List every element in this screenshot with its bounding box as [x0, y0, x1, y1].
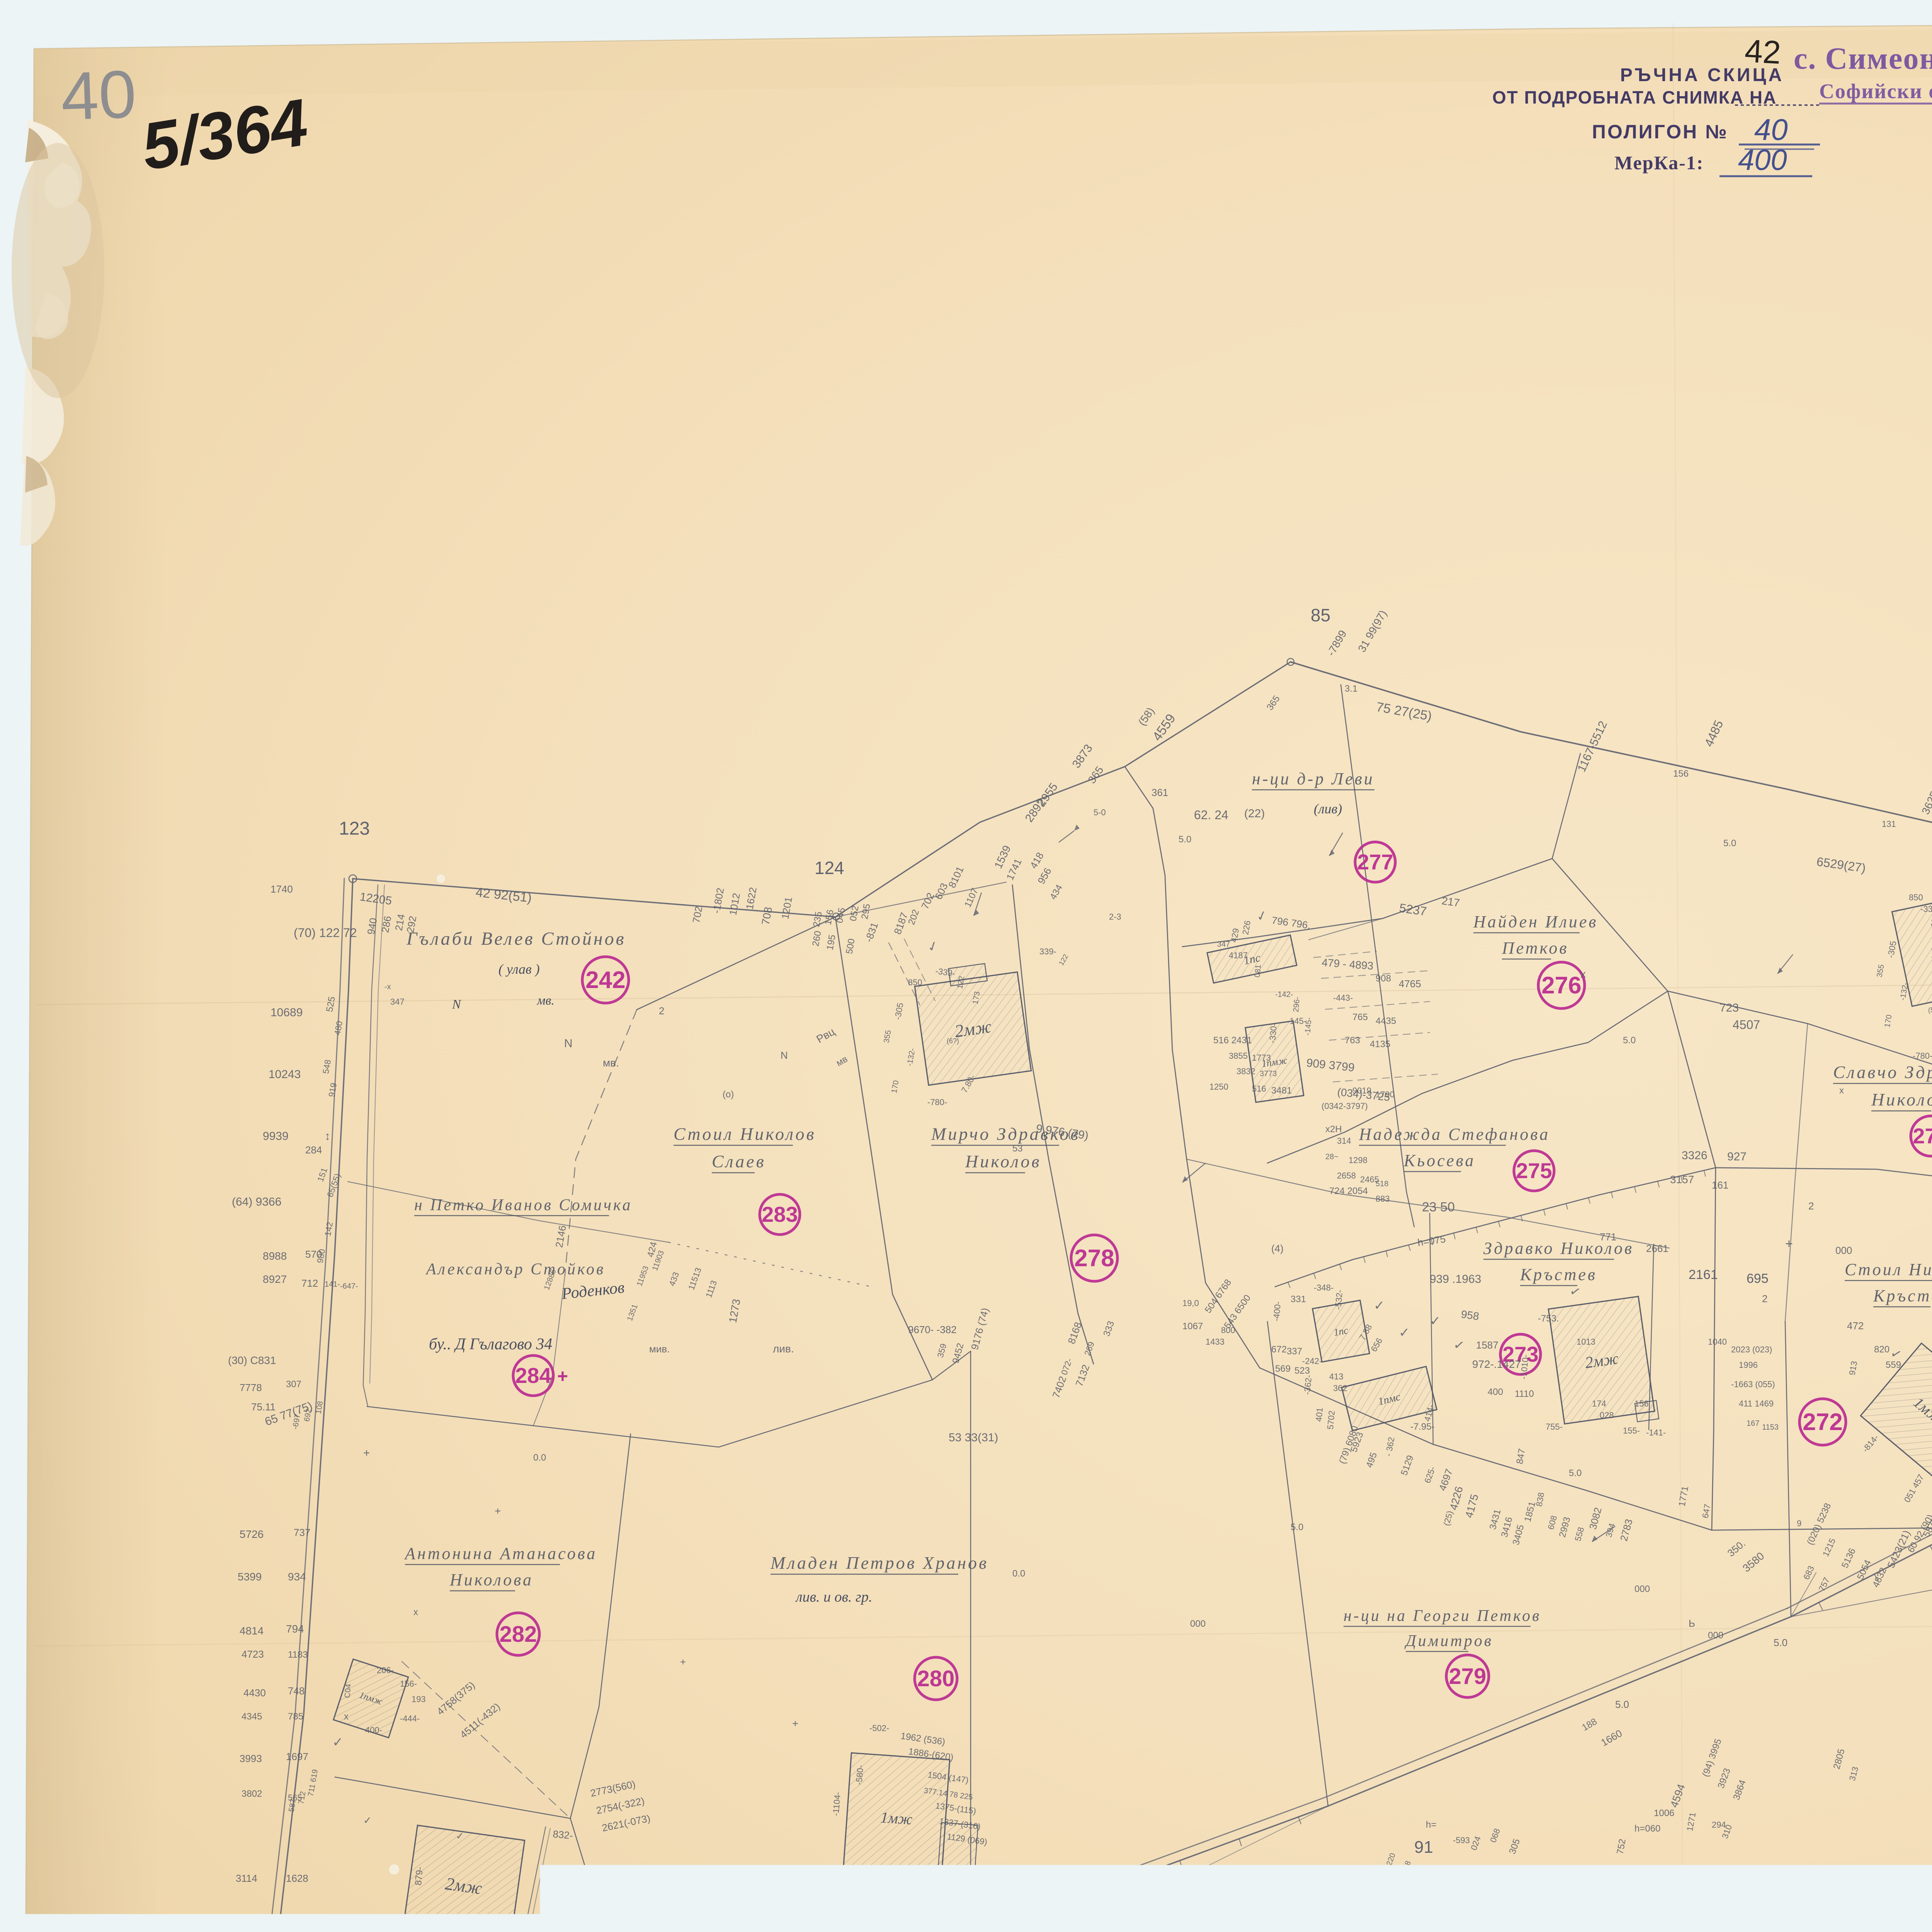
svg-text:523: 523 — [1294, 1366, 1310, 1376]
svg-text:284: 284 — [305, 1144, 322, 1156]
svg-text:91: 91 — [1414, 1838, 1433, 1857]
svg-text:242: 242 — [585, 967, 625, 993]
svg-text:4507: 4507 — [1733, 1018, 1760, 1032]
svg-text:мв.: мв. — [537, 993, 554, 1008]
svg-text:(4): (4) — [1271, 1243, 1284, 1254]
svg-text:156-: 156- — [400, 1679, 417, 1689]
svg-text:472: 472 — [1847, 1320, 1864, 1332]
svg-text:1183: 1183 — [288, 1650, 308, 1660]
svg-text:5.0: 5.0 — [1615, 1699, 1629, 1710]
svg-text:-502-: -502- — [869, 1723, 889, 1733]
svg-text:361: 361 — [1151, 787, 1168, 798]
svg-text:569: 569 — [1275, 1364, 1291, 1374]
svg-text:275: 275 — [1516, 1158, 1552, 1183]
svg-text:4814: 4814 — [240, 1625, 264, 1637]
svg-text:284: 284 — [515, 1363, 551, 1388]
svg-text:3802: 3802 — [241, 1789, 262, 1799]
svg-text:Найден Илиев: Найден Илиев — [1473, 912, 1598, 931]
svg-text:156: 156 — [1634, 1399, 1649, 1408]
svg-text:401: 401 — [1314, 1407, 1325, 1422]
svg-text:h=060: h=060 — [885, 1914, 906, 1922]
svg-text:-780-: -780- — [1913, 1051, 1932, 1061]
svg-text:3.1: 3.1 — [1345, 684, 1357, 694]
svg-text:274: 274 — [1913, 1124, 1932, 1148]
svg-text:695: 695 — [1747, 1271, 1769, 1286]
svg-text:832-: 832- — [552, 1828, 573, 1841]
svg-text:028: 028 — [1600, 1410, 1614, 1420]
svg-text:-593: -593 — [1453, 1835, 1470, 1845]
svg-text:723: 723 — [1719, 1002, 1739, 1014]
svg-text:724 2054: 724 2054 — [1329, 1186, 1368, 1196]
svg-text:1110: 1110 — [1515, 1389, 1534, 1399]
svg-text:4345: 4345 — [241, 1711, 262, 1722]
svg-text:9019: 9019 — [1352, 1086, 1371, 1095]
svg-text:1153: 1153 — [1762, 1423, 1779, 1432]
svg-text:(лив): (лив) — [1314, 801, 1342, 816]
svg-text:282: 282 — [500, 1622, 537, 1647]
svg-text:✓: ✓ — [1374, 1298, 1385, 1313]
svg-text:53 33(31): 53 33(31) — [949, 1431, 998, 1444]
svg-text:3773: 3773 — [1260, 1070, 1277, 1078]
svg-text:516: 516 — [1252, 1084, 1266, 1094]
svg-text:бу.. Д Гълагово 34: бу.. Д Гълагово 34 — [429, 1335, 552, 1353]
svg-text:Петков: Петков — [1502, 939, 1569, 957]
svg-text:1773: 1773 — [1252, 1053, 1271, 1063]
svg-text:278: 278 — [1074, 1245, 1114, 1272]
svg-text:5399: 5399 — [238, 1571, 262, 1583]
svg-text:1006: 1006 — [1654, 1808, 1674, 1818]
svg-text:-580-: -580- — [854, 1765, 865, 1785]
svg-text:3157: 3157 — [1670, 1173, 1694, 1185]
svg-text:785: 785 — [288, 1711, 303, 1722]
svg-text:40: 40 — [60, 56, 138, 134]
svg-text:н Петко Иванов Сомичка: н Петко Иванов Сомичка — [414, 1196, 633, 1214]
svg-text:277: 277 — [1357, 850, 1393, 874]
svg-text:4435: 4435 — [1376, 1016, 1396, 1026]
svg-text:1587: 1587 — [1476, 1339, 1498, 1351]
svg-text:1433: 1433 — [1206, 1337, 1225, 1347]
svg-text:+: + — [363, 1447, 370, 1459]
svg-text:000: 000 — [1835, 1245, 1852, 1256]
svg-text:748: 748 — [288, 1685, 304, 1697]
svg-text:53: 53 — [1012, 1143, 1023, 1154]
svg-text:(64) 9366: (64) 9366 — [232, 1196, 281, 1208]
svg-text:337: 337 — [1287, 1346, 1302, 1357]
svg-text:Кьосева: Кьосева — [1403, 1151, 1476, 1170]
svg-text:-532-: -532- — [1333, 1289, 1344, 1310]
svg-text:3855: 3855 — [1229, 1051, 1248, 1061]
svg-text:N: N — [781, 1049, 788, 1061]
svg-text:712: 712 — [301, 1277, 318, 1289]
svg-text:516 2431: 516 2431 — [1213, 1035, 1252, 1046]
svg-text:1740: 1740 — [270, 883, 293, 895]
svg-text:9939: 9939 — [263, 1130, 289, 1143]
svg-text:-362-: -362- — [1302, 1374, 1313, 1395]
svg-text:883: 883 — [1376, 1194, 1390, 1204]
svg-text:755-: 755- — [1546, 1422, 1563, 1432]
svg-text:С04: С04 — [343, 1684, 353, 1698]
svg-text:мв.: мв. — [603, 1057, 619, 1069]
svg-text:4135: 4135 — [1370, 1039, 1390, 1049]
svg-text:(30) С831: (30) С831 — [228, 1354, 276, 1366]
svg-text:2661: 2661 — [1646, 1243, 1668, 1254]
svg-text:-142-: -142- — [1275, 990, 1293, 999]
svg-text:400: 400 — [1738, 144, 1787, 177]
svg-text:РЪЧНА СКИЦА: РЪЧНА СКИЦА — [1620, 65, 1784, 85]
svg-text:✓: ✓ — [954, 1878, 966, 1893]
svg-text:-443-: -443- — [1333, 993, 1353, 1003]
svg-text:3993: 3993 — [240, 1753, 262, 1764]
svg-text:296-: 296- — [1292, 997, 1301, 1013]
svg-text:1040: 1040 — [1708, 1337, 1727, 1347]
svg-text:5.0: 5.0 — [1774, 1637, 1787, 1648]
svg-text:958: 958 — [1460, 1308, 1480, 1322]
svg-text:2: 2 — [1762, 1293, 1767, 1304]
svg-text:Кръстев: Кръстев — [1873, 1286, 1932, 1305]
svg-text:5.0: 5.0 — [1179, 834, 1191, 845]
svg-text:Антонина Атанасова: Антонина Атанасова — [404, 1544, 597, 1563]
svg-text:1067: 1067 — [1182, 1321, 1203, 1332]
svg-text:-339-: -339- — [1920, 904, 1932, 914]
svg-text:8927: 8927 — [263, 1273, 287, 1285]
svg-text:2658: 2658 — [1337, 1171, 1356, 1180]
svg-text:-780-: -780- — [927, 1097, 947, 1107]
svg-text:19,0: 19,0 — [1182, 1298, 1199, 1308]
svg-text:-145-: -145- — [1287, 1016, 1306, 1026]
svg-text:9: 9 — [1797, 1519, 1801, 1528]
svg-text:081: 081 — [1253, 964, 1263, 978]
svg-text:850: 850 — [908, 978, 922, 987]
svg-text:(22): (22) — [1244, 807, 1265, 820]
svg-text:(6?): (6?) — [947, 1037, 959, 1045]
svg-text:75.11: 75.11 — [251, 1401, 276, 1413]
svg-text:756: 756 — [900, 1893, 915, 1903]
svg-text:156: 156 — [1673, 769, 1689, 779]
svg-text:280: 280 — [917, 1666, 955, 1691]
svg-text:-348-: -348- — [1314, 1283, 1333, 1293]
svg-text:771: 771 — [1600, 1231, 1616, 1243]
svg-text:5702: 5702 — [1325, 1410, 1337, 1430]
svg-text:✓: ✓ — [363, 1815, 372, 1826]
svg-text:лив.: лив. — [773, 1343, 794, 1355]
svg-text:765: 765 — [1352, 1012, 1368, 1022]
svg-text:-7.95-: -7.95- — [1410, 1422, 1435, 1432]
svg-text:Надежда Стефанова: Надежда Стефанова — [1359, 1125, 1550, 1144]
svg-text:1250: 1250 — [1209, 1082, 1228, 1092]
svg-text:4430: 4430 — [243, 1687, 266, 1699]
svg-text:167: 167 — [1747, 1419, 1759, 1428]
svg-text:123: 123 — [339, 818, 370, 839]
svg-text:( улав ): ( улав ) — [498, 961, 540, 977]
svg-text:3481: 3481 — [1271, 1085, 1292, 1096]
svg-text:н-ци на Георги Петков: н-ци на Георги Петков — [1344, 1607, 1541, 1625]
svg-text:1401: 1401 — [270, 1924, 289, 1932]
svg-text:1241: 1241 — [933, 1893, 942, 1909]
svg-text:h=060: h=060 — [1634, 1823, 1660, 1834]
svg-text:193: 193 — [412, 1694, 426, 1704]
svg-text:206-: 206- — [377, 1665, 394, 1675]
svg-text:+: + — [495, 1505, 501, 1517]
svg-text:314: 314 — [1337, 1136, 1351, 1146]
svg-text:МерКа-1:: МерКа-1: — [1614, 152, 1704, 173]
svg-text:4723: 4723 — [241, 1648, 264, 1660]
svg-text:х: х — [1839, 1085, 1844, 1096]
svg-text:Николова: Николова — [449, 1570, 533, 1589]
svg-text:Младен Петров Хранов: Младен Петров Хранов — [770, 1553, 988, 1573]
svg-text:-х: -х — [384, 983, 391, 991]
svg-text:362: 362 — [1333, 1383, 1347, 1393]
svg-text:283: 283 — [762, 1202, 798, 1226]
svg-text:307: 307 — [286, 1379, 301, 1389]
svg-text:161: 161 — [1712, 1179, 1728, 1191]
svg-text:Стоил Николов: Стоил Николов — [673, 1124, 816, 1144]
svg-text:62. 24: 62. 24 — [1194, 808, 1228, 822]
svg-text:2: 2 — [659, 1005, 664, 1017]
svg-text:40: 40 — [1754, 112, 1788, 146]
svg-text:2-3: 2-3 — [1109, 912, 1121, 922]
svg-text:Гълаби Велев Стойнов: Гълаби Велев Стойнов — [406, 929, 626, 949]
svg-text:279: 279 — [1449, 1664, 1486, 1689]
svg-text:879-: 879- — [413, 1866, 425, 1886]
svg-text:h=: h= — [1426, 1820, 1436, 1830]
svg-text:908: 908 — [1376, 973, 1391, 984]
svg-text:217: 217 — [1441, 895, 1461, 909]
svg-text:934: 934 — [288, 1571, 306, 1583]
svg-text:1996: 1996 — [1739, 1360, 1758, 1370]
svg-text:Николов: Николов — [965, 1151, 1041, 1171]
svg-text:794: 794 — [286, 1623, 304, 1635]
svg-text:-1663 (055): -1663 (055) — [1731, 1379, 1775, 1389]
svg-text:-145-: -145- — [1303, 1017, 1313, 1036]
svg-text:✓: ✓ — [1399, 1325, 1410, 1340]
svg-text:+: + — [792, 1718, 798, 1730]
svg-text:000: 000 — [1634, 1584, 1650, 1594]
svg-text:↕: ↕ — [325, 1130, 330, 1143]
svg-text:-330-: -330- — [1267, 1023, 1279, 1043]
svg-text:141-: 141- — [325, 1280, 340, 1289]
svg-text:000: 000 — [1190, 1619, 1206, 1629]
svg-text:411 1469: 411 1469 — [1739, 1399, 1774, 1408]
svg-text:5.0: 5.0 — [1569, 1468, 1582, 1478]
svg-text:23 50: 23 50 — [1422, 1200, 1455, 1214]
svg-text:131: 131 — [1882, 819, 1896, 829]
svg-text:Кръстев: Кръстев — [1520, 1265, 1597, 1284]
svg-text:-678-: -678- — [873, 1882, 893, 1891]
svg-text:820: 820 — [1874, 1344, 1889, 1355]
svg-text:5-0: 5-0 — [1094, 808, 1106, 817]
svg-text:Слаев: Слаев — [712, 1151, 766, 1171]
svg-text:-753.: -753. — [1538, 1313, 1559, 1324]
svg-text:000: 000 — [1708, 1630, 1723, 1641]
svg-text:ПОЛИГОН №: ПОЛИГОН № — [1592, 121, 1728, 143]
svg-text:-647-: -647- — [340, 1282, 358, 1291]
svg-text:1298: 1298 — [1349, 1155, 1367, 1165]
svg-text:N: N — [564, 1037, 573, 1050]
svg-text:0.0: 0.0 — [533, 1452, 546, 1463]
svg-text:0.0: 0.0 — [1012, 1568, 1025, 1579]
svg-text:+: + — [557, 1366, 568, 1387]
svg-text:3326: 3326 — [1682, 1149, 1708, 1162]
svg-text:(70) 122 72: (70) 122 72 — [294, 926, 357, 940]
svg-text:5726: 5726 — [240, 1528, 264, 1540]
svg-text:413: 413 — [1329, 1372, 1344, 1381]
svg-text:-242-: -242- — [1302, 1356, 1322, 1366]
svg-text:850: 850 — [1909, 893, 1923, 902]
svg-text:85: 85 — [1311, 605, 1330, 625]
svg-text:1628: 1628 — [286, 1872, 308, 1884]
svg-text:400-: 400- — [365, 1725, 382, 1735]
svg-text:3114: 3114 — [236, 1872, 257, 1884]
svg-text:Димитров: Димитров — [1404, 1632, 1493, 1650]
svg-text:-400-: -400- — [1271, 1301, 1282, 1321]
svg-text:2: 2 — [1808, 1200, 1814, 1212]
svg-text:939 .1963: 939 .1963 — [1430, 1273, 1481, 1286]
svg-text:927: 927 — [1727, 1150, 1747, 1163]
svg-text:н-ци д-р Леви: н-ци д-р Леви — [1252, 769, 1374, 788]
svg-text:✓: ✓ — [1430, 1314, 1441, 1328]
svg-text:Александър Стойков: Александър Стойков — [425, 1260, 605, 1278]
svg-text:763: 763 — [1345, 1035, 1360, 1046]
svg-text:2761: 2761 — [228, 1920, 248, 1930]
svg-text:10243: 10243 — [269, 1068, 301, 1081]
svg-text:155-: 155- — [1623, 1426, 1640, 1435]
svg-text:28~: 28~ — [1325, 1153, 1338, 1161]
svg-text:672: 672 — [1271, 1344, 1287, 1355]
svg-text:лив. и ов. гр.: лив. и ов. гр. — [795, 1589, 872, 1605]
svg-text:х2Н: х2Н — [1325, 1124, 1342, 1134]
svg-text:2023 (023): 2023 (023) — [1731, 1345, 1772, 1354]
svg-text:276: 276 — [1541, 972, 1581, 999]
svg-text:мив.: мив. — [649, 1343, 670, 1355]
svg-text:737: 737 — [294, 1527, 310, 1538]
svg-text:х: х — [413, 1607, 418, 1617]
svg-text:972-.1427: 972-.1427 — [1472, 1358, 1521, 1370]
svg-text:х: х — [344, 1711, 349, 1722]
svg-text:+: + — [1785, 1236, 1793, 1251]
svg-text:(59): (59) — [1928, 1006, 1932, 1014]
svg-text:1мж: 1мж — [880, 1808, 913, 1828]
svg-text:Стоил Николов: Стоил Николов — [1845, 1260, 1932, 1279]
svg-text:331: 331 — [1291, 1294, 1306, 1304]
svg-text:4765: 4765 — [1399, 978, 1421, 990]
svg-text:10689: 10689 — [270, 1006, 303, 1019]
svg-text:339-: 339- — [1039, 947, 1056, 956]
svg-text:(о): (о) — [723, 1089, 734, 1100]
svg-text:272: 272 — [1803, 1409, 1842, 1435]
svg-text:с. Симеоново: с. Симеоново — [1794, 42, 1932, 76]
svg-text:1790: 1790 — [1376, 1090, 1395, 1099]
svg-text:ОТ ПОДРОБНАТА СНИМКА НА: ОТ ПОДРОБНАТА СНИМКА НА — [1492, 87, 1777, 107]
svg-text:5.0: 5.0 — [1291, 1522, 1303, 1532]
svg-text:х: х — [1580, 968, 1586, 980]
svg-text:1013: 1013 — [1577, 1337, 1595, 1347]
svg-text:+: + — [680, 1656, 686, 1668]
svg-text:124: 124 — [815, 858, 844, 878]
svg-text:400: 400 — [1488, 1387, 1503, 1397]
svg-text:✓: ✓ — [332, 1735, 344, 1750]
svg-text:✓: ✓ — [456, 1831, 464, 1842]
svg-text:-444-: -444- — [400, 1714, 420, 1723]
svg-text:(0342-3797): (0342-3797) — [1321, 1101, 1368, 1111]
svg-text:347: 347 — [390, 997, 405, 1007]
svg-text:5.0: 5.0 — [1623, 1035, 1636, 1046]
svg-text:3832: 3832 — [1236, 1066, 1255, 1076]
svg-text:9670- -382: 9670- -382 — [908, 1324, 957, 1335]
svg-text:Ь: Ь — [1689, 1617, 1695, 1629]
svg-text:518: 518 — [1376, 1180, 1388, 1188]
svg-text:-141-: -141- — [1646, 1428, 1666, 1437]
svg-text:Николов: Николов — [1871, 1090, 1932, 1109]
svg-text:5.0: 5.0 — [1723, 838, 1736, 849]
svg-text:Софийски окръг: Софийски окръг — [1819, 80, 1932, 103]
svg-text:1697: 1697 — [286, 1751, 308, 1762]
svg-text:174: 174 — [1592, 1399, 1606, 1408]
svg-text:7778: 7778 — [240, 1382, 262, 1393]
svg-text:N: N — [452, 997, 462, 1012]
svg-text:4187: 4187 — [1229, 951, 1248, 960]
svg-text:Славчо Здравков: Славчо Здравков — [1833, 1062, 1932, 1082]
svg-text:-876-: -876- — [544, 1873, 557, 1895]
svg-text:2161: 2161 — [1689, 1267, 1718, 1282]
svg-text:8988: 8988 — [263, 1250, 287, 1262]
svg-text:347: 347 — [1217, 940, 1230, 949]
